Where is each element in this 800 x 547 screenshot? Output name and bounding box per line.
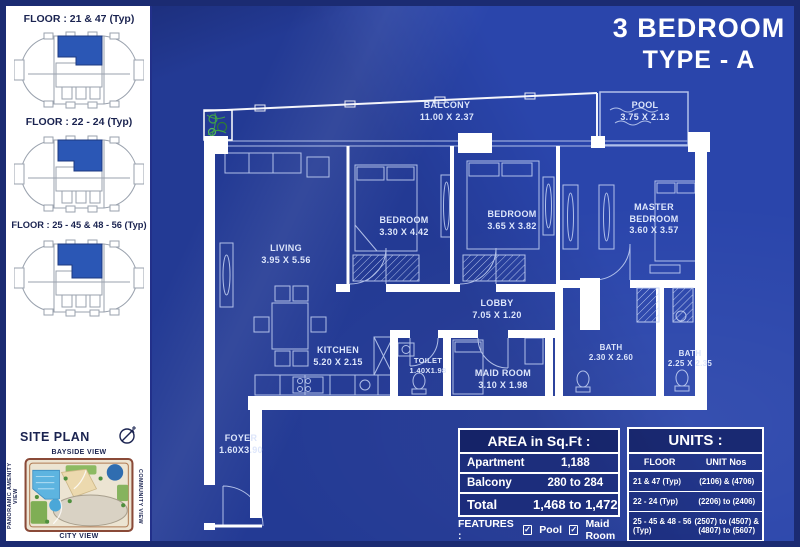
view-label-left: PANORAMIC AMENITY VIEW — [7, 456, 19, 536]
table-row-total: Total 1,468 to 1,472 — [460, 494, 618, 515]
table-row: 25 - 45 & 48 - 56 (Typ) (2507) to (4507)… — [629, 512, 762, 540]
site-plan-title: SITE PLAN — [20, 430, 90, 444]
room-label-balcony: BALCONY11.00 X 2.37 — [397, 100, 497, 123]
checkbox-icon: ✓ — [523, 525, 532, 535]
view-label-bottom: CITY VIEW — [6, 533, 152, 540]
room-label-maid-room: MAID ROOM3.10 X 1.98 — [453, 368, 553, 391]
building-footprint-diagram-1 — [14, 28, 144, 112]
fabric-background: FLOOR : 21 & 47 (Typ) FLOOR : 22 - 24 (T… — [6, 6, 794, 541]
units-table: UNITS : FLOOR UNIT Nos 21 & 47 (Typ) (21… — [627, 427, 764, 541]
floor-label-2: FLOOR : 22 - 24 (Typ) — [6, 116, 152, 128]
room-label-bedroom-2: BEDROOM3.65 X 3.82 — [462, 209, 562, 232]
features-label: FEATURES : — [458, 518, 516, 541]
building-footprint-diagram-3 — [14, 236, 144, 320]
table-row: Apartment 1,188 — [460, 454, 618, 474]
room-label-living: LIVING3.95 X 5.56 — [236, 243, 336, 266]
plant-icon — [207, 113, 227, 137]
checkbox-icon: ✓ — [569, 525, 578, 535]
compass-icon — [118, 425, 138, 445]
room-label-bedroom-1: BEDROOM3.30 X 4.42 — [354, 215, 454, 238]
room-label-kitchen: KITCHEN5.20 X 2.15 — [288, 345, 388, 368]
area-table-header: AREA in Sq.Ft : — [460, 430, 618, 454]
brochure-page: FLOOR : 21 & 47 (Typ) FLOOR : 22 - 24 (T… — [0, 0, 800, 547]
room-label-foyer: FOYER1.60X3.90 — [206, 433, 276, 456]
units-table-columns: FLOOR UNIT Nos — [629, 454, 762, 472]
room-label-master-bedroom: MASTER BEDROOM3.60 X 3.57 — [618, 202, 690, 237]
sidebar: FLOOR : 21 & 47 (Typ) FLOOR : 22 - 24 (T… — [6, 6, 152, 541]
room-label-bath-2: BATH2.25 X 2.35 — [650, 349, 730, 370]
table-row: Balcony 280 to 284 — [460, 474, 618, 494]
shower-enclosures — [637, 288, 693, 322]
room-label-pool: POOL3.75 X 2.13 — [595, 100, 695, 123]
view-label-right: COMMUNITY VIEW — [137, 456, 143, 536]
floor-label-1: FLOOR : 21 & 47 (Typ) — [6, 13, 152, 25]
view-label-top: BAYSIDE VIEW — [6, 449, 152, 456]
title-line-2: TYPE - A — [606, 45, 792, 76]
feature-pool-label: Pool — [539, 524, 562, 536]
room-label-bath-1: BATH2.30 X 2.60 — [566, 343, 656, 364]
floor-label-3: FLOOR : 25 - 45 & 48 - 56 (Typ) — [6, 220, 152, 230]
table-row: 22 - 24 (Typ) (2206) to (2406) — [629, 492, 762, 512]
features-row: FEATURES : ✓ Pool ✓ Maid Room — [458, 518, 638, 541]
site-plan-map — [24, 458, 134, 532]
units-table-header: UNITS : — [629, 429, 762, 454]
title-line-1: 3 BEDROOM — [606, 12, 792, 45]
page-title: 3 BEDROOM TYPE - A — [606, 12, 792, 75]
area-table: AREA in Sq.Ft : Apartment 1,188 Balcony … — [458, 428, 620, 517]
building-footprint-diagram-2 — [14, 132, 144, 216]
table-row: 21 & 47 (Typ) (2106) & (4706) — [629, 472, 762, 492]
room-label-lobby: LOBBY7.05 X 1.20 — [447, 298, 547, 321]
